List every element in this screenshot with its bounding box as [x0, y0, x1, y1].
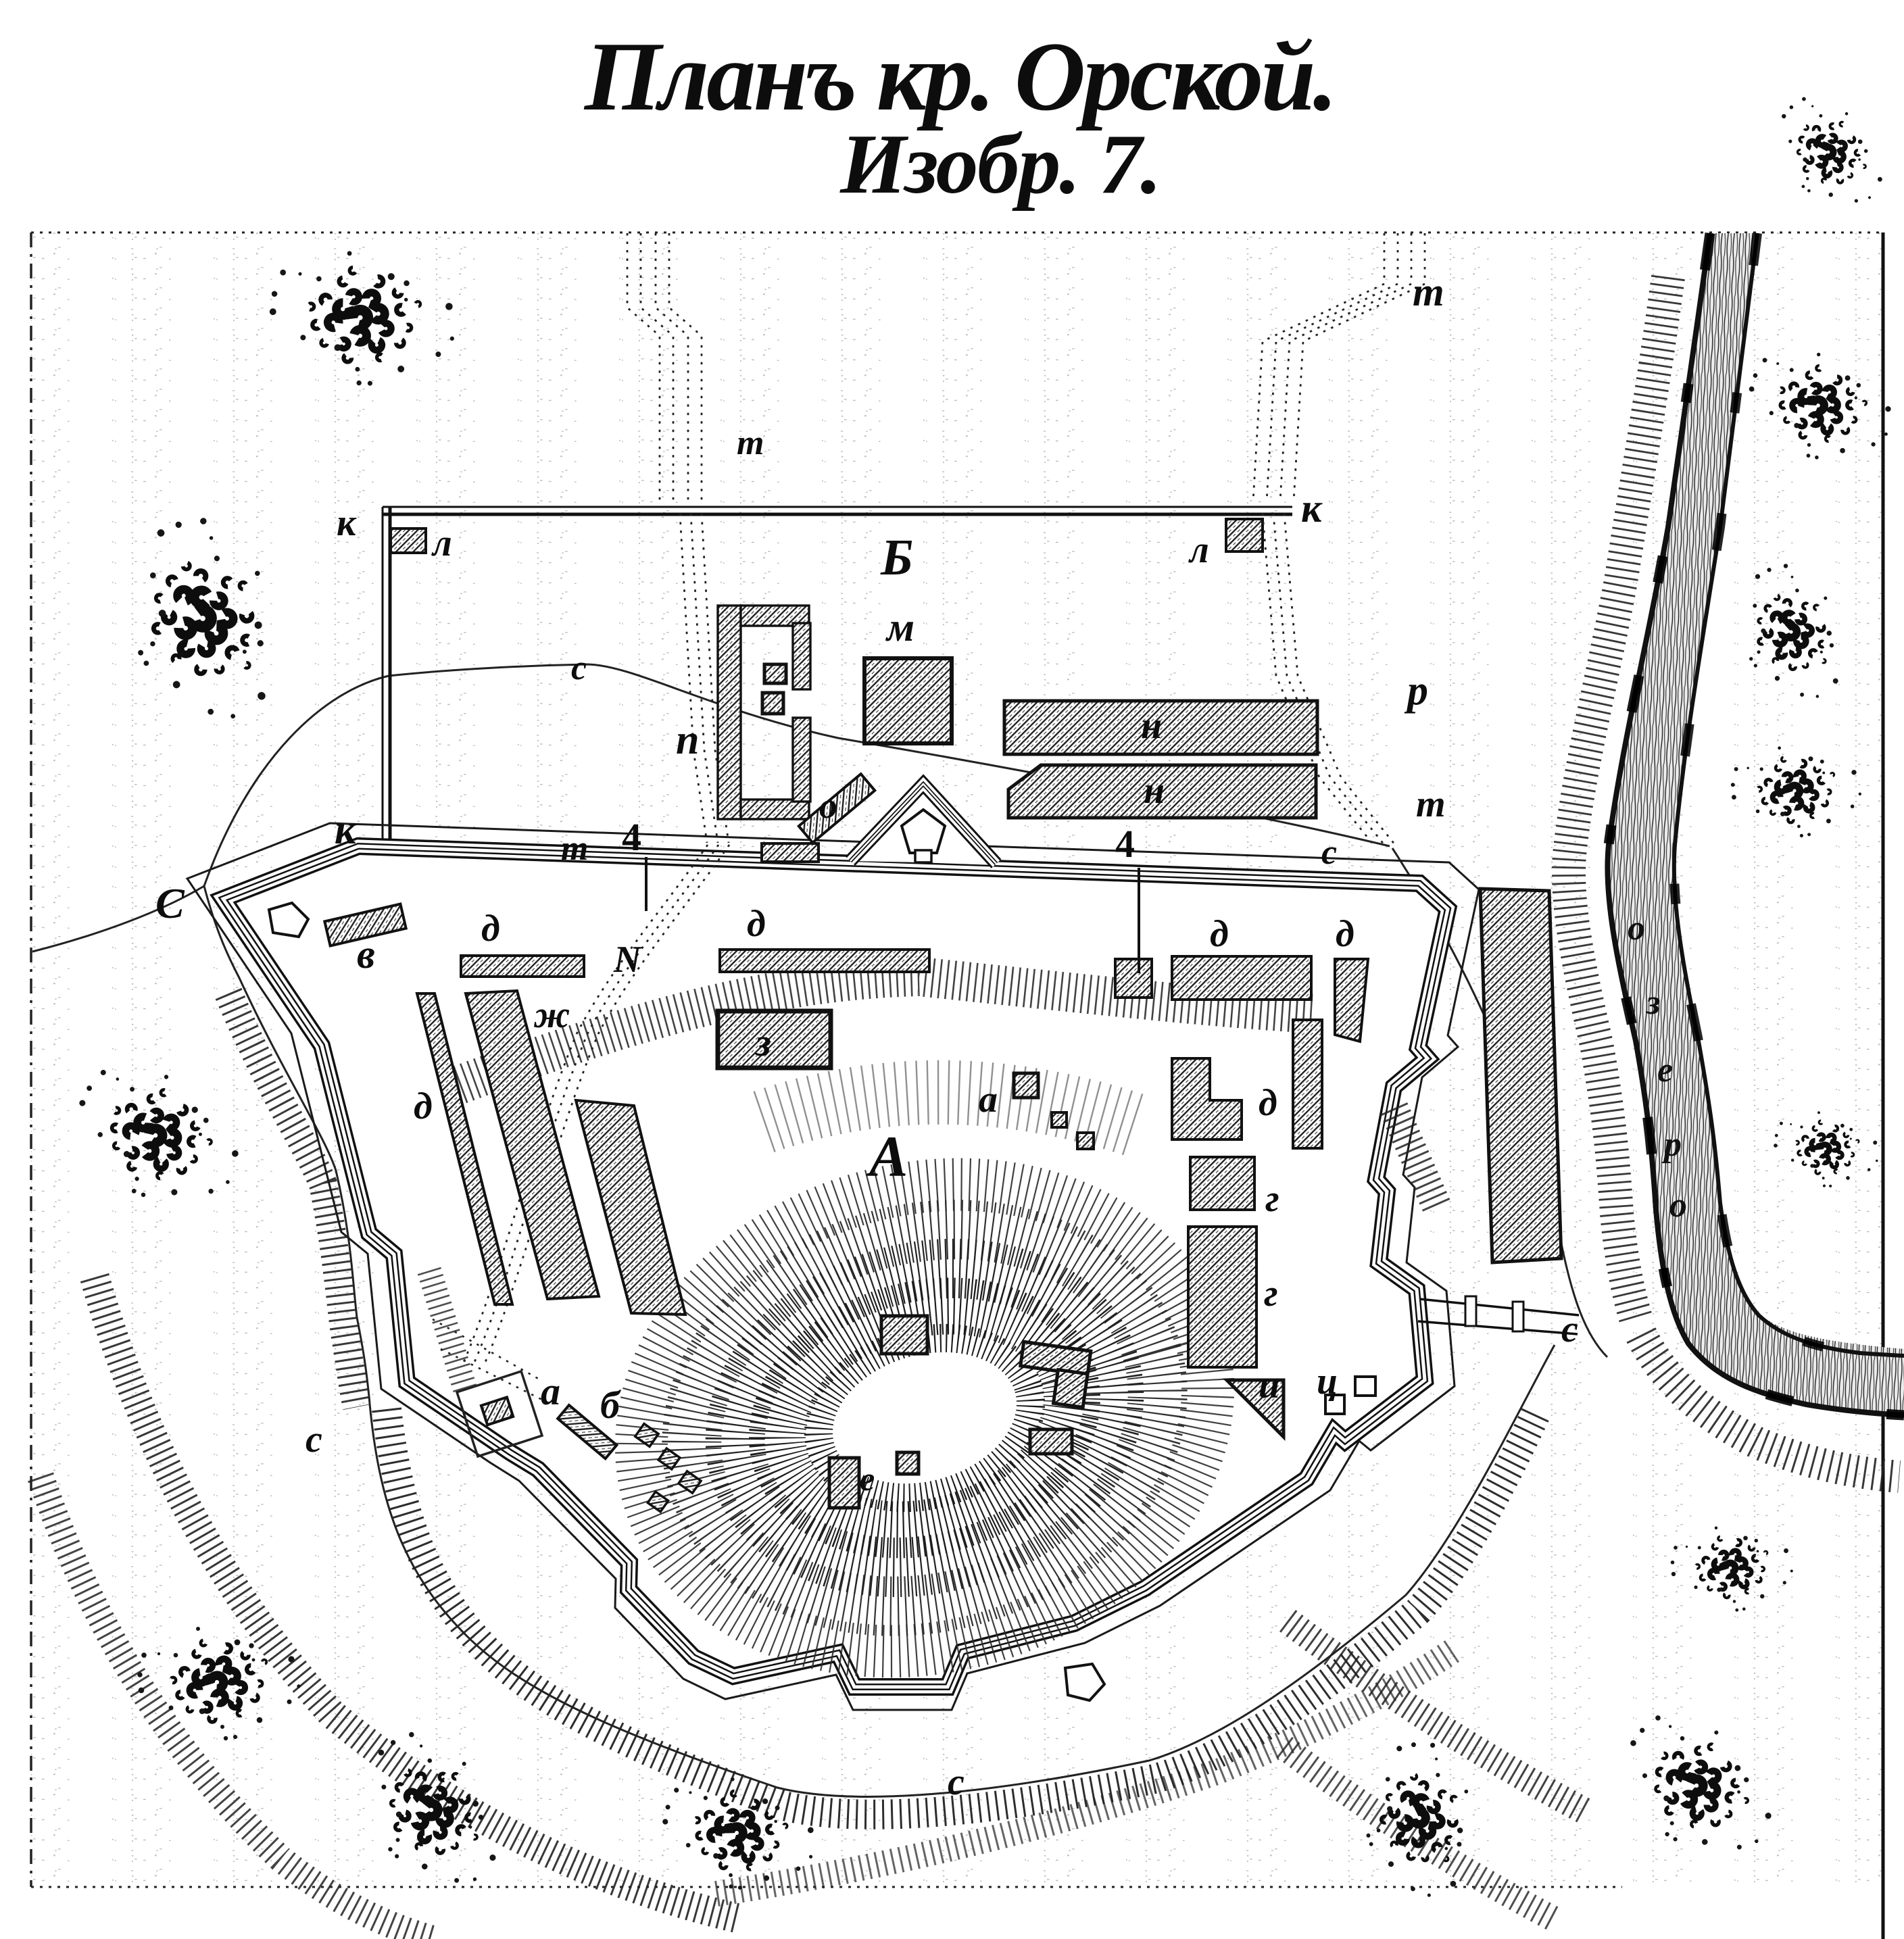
svg-text:в: в	[357, 932, 375, 977]
svg-text:г: г	[1264, 1273, 1278, 1315]
svg-text:м: м	[885, 605, 914, 649]
svg-text:т: т	[561, 829, 588, 868]
svg-text:г: г	[1265, 1178, 1279, 1220]
svg-text:н: н	[1144, 770, 1165, 812]
svg-text:п: п	[676, 717, 699, 763]
svg-text:д: д	[1259, 1082, 1277, 1124]
svg-text:т: т	[1416, 783, 1446, 825]
svg-text:4: 4	[1115, 822, 1135, 866]
svg-text:Изобр. 7.: Изобр. 7.	[839, 118, 1161, 212]
svg-text:А: А	[866, 1124, 908, 1189]
svg-text:и: и	[1259, 1365, 1279, 1406]
svg-text:о: о	[1669, 1186, 1687, 1225]
svg-text:к: к	[337, 502, 357, 544]
svg-text:Б: Б	[880, 529, 913, 586]
svg-text:ц: ц	[1317, 1360, 1338, 1402]
svg-text:с: с	[1321, 833, 1337, 872]
svg-text:д: д	[481, 908, 500, 950]
svg-text:с: с	[571, 649, 587, 687]
svg-text:а: а	[979, 1079, 998, 1121]
svg-text:с: с	[1561, 1308, 1578, 1350]
svg-text:а: а	[541, 1369, 560, 1413]
svg-text:е: е	[1657, 1051, 1673, 1089]
svg-text:р: р	[1661, 1125, 1682, 1164]
svg-text:о: о	[819, 785, 837, 826]
svg-text:с: с	[306, 1419, 322, 1461]
svg-text:р: р	[1404, 668, 1428, 714]
svg-text:к: к	[1301, 486, 1323, 531]
svg-text:ж: ж	[533, 994, 570, 1036]
svg-text:л: л	[1188, 529, 1209, 571]
svg-text:д: д	[747, 903, 766, 945]
svg-text:Планъ кр. Орской.: Планъ кр. Орской.	[583, 22, 1335, 131]
svg-text:з: з	[754, 1021, 771, 1064]
svg-text:N: N	[613, 939, 643, 981]
svg-text:о: о	[1628, 909, 1645, 948]
svg-text:С: С	[155, 879, 185, 927]
svg-text:4: 4	[622, 815, 641, 859]
svg-text:н: н	[1141, 705, 1162, 747]
svg-text:з: з	[1645, 983, 1660, 1022]
svg-text:е: е	[860, 1460, 875, 1498]
svg-text:с: с	[948, 1761, 965, 1803]
svg-text:д: д	[1210, 913, 1229, 955]
svg-text:т: т	[1413, 270, 1444, 314]
svg-text:т: т	[737, 424, 764, 462]
svg-text:д: д	[414, 1085, 433, 1127]
svg-text:к: к	[335, 807, 357, 853]
svg-text:б: б	[600, 1383, 621, 1427]
svg-text:л: л	[431, 522, 452, 564]
svg-text:д: д	[1336, 913, 1354, 955]
